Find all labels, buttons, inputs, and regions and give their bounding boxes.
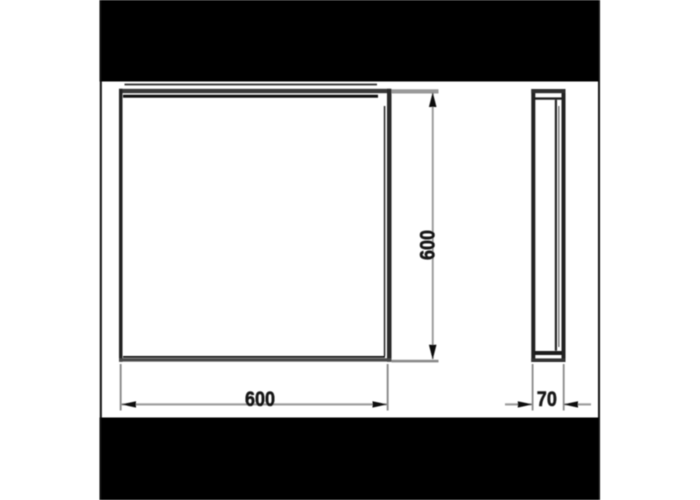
svg-text:600: 600 [245,388,275,412]
svg-text:600: 600 [416,230,440,260]
svg-text:70: 70 [537,388,557,412]
